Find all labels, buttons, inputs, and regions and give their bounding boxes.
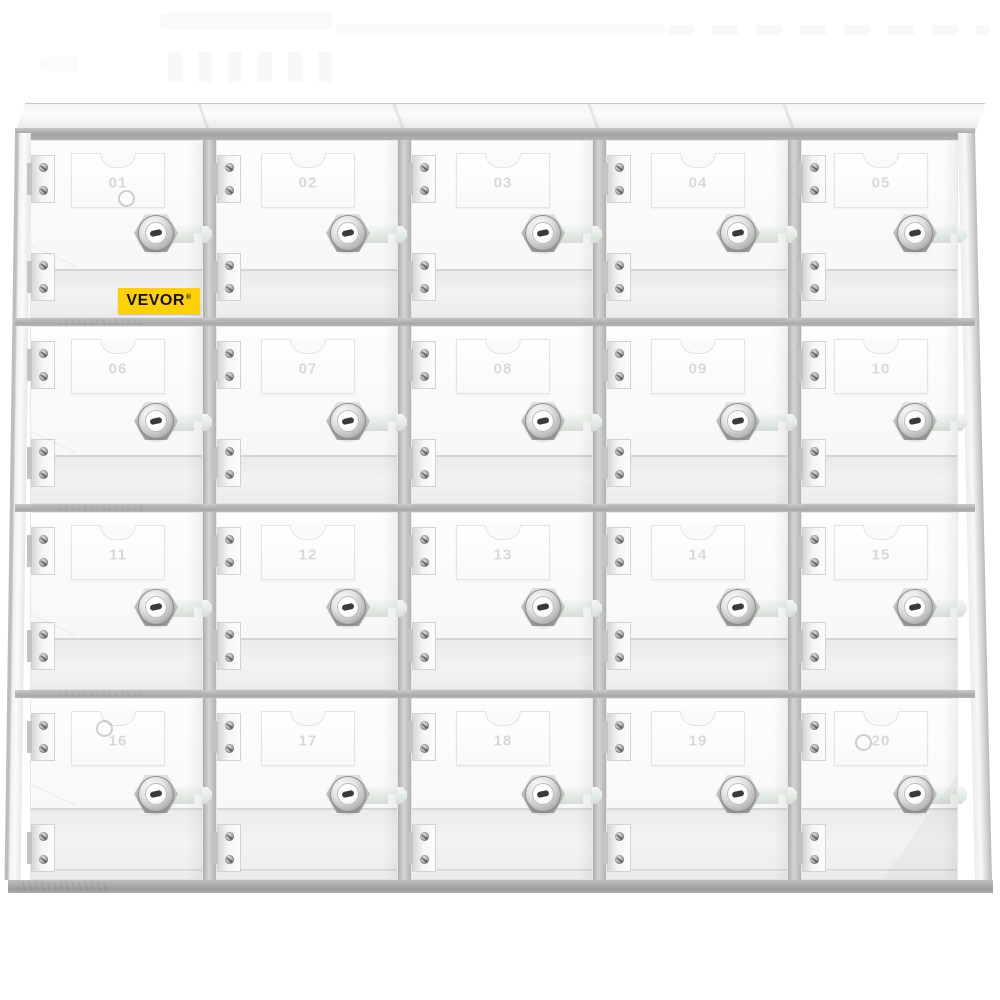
hinge-icon bbox=[802, 622, 826, 670]
keyhole-icon bbox=[342, 229, 355, 237]
cam-lock-icon bbox=[720, 215, 756, 251]
keyhole-icon bbox=[909, 603, 922, 611]
card-notch-icon bbox=[485, 711, 521, 726]
locker-number: 02 bbox=[262, 174, 354, 191]
keyhole-icon bbox=[909, 417, 922, 425]
card-notch-icon bbox=[863, 153, 899, 168]
card-notch-icon bbox=[100, 339, 136, 354]
shelf-edge bbox=[31, 455, 202, 507]
door-bottom-edge bbox=[217, 869, 397, 871]
hinge-icon bbox=[31, 527, 55, 575]
keyhole-icon bbox=[342, 790, 355, 798]
number-card: 16 bbox=[71, 711, 165, 766]
number-card: 09 bbox=[651, 339, 745, 394]
screw-icon bbox=[615, 186, 624, 195]
hinge-icon bbox=[607, 622, 631, 670]
lock-face bbox=[145, 410, 167, 432]
screw-icon bbox=[810, 349, 819, 358]
number-card: 15 bbox=[834, 525, 928, 580]
number-card: 11 bbox=[71, 525, 165, 580]
locker-number: 10 bbox=[835, 360, 927, 377]
shelf-edge bbox=[412, 808, 592, 883]
hinge-icon bbox=[31, 253, 55, 301]
locker-door-04: 04 bbox=[606, 140, 788, 318]
keyhole-icon bbox=[909, 229, 922, 237]
screw-icon bbox=[39, 832, 48, 841]
screw-icon bbox=[420, 372, 429, 381]
cam-lock-icon bbox=[138, 776, 174, 812]
screw-icon bbox=[39, 535, 48, 544]
keyhole-icon bbox=[150, 229, 163, 237]
lock-face bbox=[532, 410, 554, 432]
locker-door-06: 06 bbox=[30, 326, 203, 504]
key-ring-icon bbox=[96, 720, 113, 737]
locker-number: 16 bbox=[72, 732, 164, 749]
screw-icon bbox=[39, 284, 48, 293]
hinge-icon bbox=[607, 824, 631, 872]
cam-lock-icon bbox=[897, 589, 933, 625]
number-card: 12 bbox=[261, 525, 355, 580]
card-notch-icon bbox=[100, 525, 136, 540]
screw-icon bbox=[810, 470, 819, 479]
cam-lock-icon bbox=[138, 215, 174, 251]
hinge-icon bbox=[217, 253, 241, 301]
screw-icon bbox=[225, 470, 234, 479]
screw-icon bbox=[420, 186, 429, 195]
locker-door-10: 10 bbox=[801, 326, 958, 504]
keyhole-icon bbox=[732, 229, 745, 237]
keyhole-icon bbox=[342, 417, 355, 425]
lock-face bbox=[145, 222, 167, 244]
screw-icon bbox=[810, 653, 819, 662]
screw-icon bbox=[420, 558, 429, 567]
number-card: 06 bbox=[71, 339, 165, 394]
number-card: 01 bbox=[71, 153, 165, 208]
locker-door-03: 03 bbox=[411, 140, 593, 318]
hinge-icon bbox=[412, 341, 436, 389]
screw-icon bbox=[615, 630, 624, 639]
number-card: 10 bbox=[834, 339, 928, 394]
card-notch-icon bbox=[863, 711, 899, 726]
lock-face bbox=[904, 783, 926, 805]
cam-lock-icon bbox=[720, 589, 756, 625]
screw-icon bbox=[615, 372, 624, 381]
locker-number: 01 bbox=[72, 174, 164, 191]
screw-icon bbox=[420, 721, 429, 730]
screw-icon bbox=[810, 284, 819, 293]
screw-icon bbox=[420, 653, 429, 662]
keyhole-icon bbox=[909, 790, 922, 798]
hinge-icon bbox=[412, 713, 436, 761]
hinge-icon bbox=[217, 439, 241, 487]
cabinet-bottom-rail bbox=[8, 880, 993, 893]
locker-door-09: 09 bbox=[606, 326, 788, 504]
lock-face bbox=[904, 410, 926, 432]
keyhole-icon bbox=[537, 603, 550, 611]
locker-number: 14 bbox=[652, 546, 744, 563]
door-bottom-edge bbox=[607, 869, 787, 871]
locker-number: 11 bbox=[72, 546, 164, 563]
ceiling-reflection bbox=[335, 24, 665, 35]
screw-icon bbox=[810, 372, 819, 381]
hinge-icon bbox=[802, 253, 826, 301]
lock-face bbox=[532, 783, 554, 805]
screw-icon bbox=[39, 855, 48, 864]
screw-icon bbox=[225, 372, 234, 381]
registered-trademark-icon: ® bbox=[186, 294, 192, 301]
locker-number: 07 bbox=[262, 360, 354, 377]
locker-door-15: 15 bbox=[801, 512, 958, 690]
cam-lock-icon bbox=[330, 589, 366, 625]
cam-lock-icon bbox=[720, 776, 756, 812]
screw-icon bbox=[420, 855, 429, 864]
screw-icon bbox=[420, 284, 429, 293]
number-card: 14 bbox=[651, 525, 745, 580]
cam-lock-icon bbox=[330, 215, 366, 251]
shelf-edge bbox=[217, 455, 397, 507]
screw-icon bbox=[420, 744, 429, 753]
screw-icon bbox=[810, 186, 819, 195]
shelf-edge bbox=[607, 455, 787, 507]
hinge-icon bbox=[802, 824, 826, 872]
keyhole-icon bbox=[537, 790, 550, 798]
screw-icon bbox=[615, 744, 624, 753]
ceiling-reflection bbox=[668, 25, 990, 35]
number-card: 20 bbox=[834, 711, 928, 766]
card-notch-icon bbox=[290, 711, 326, 726]
card-notch-icon bbox=[680, 525, 716, 540]
number-card: 02 bbox=[261, 153, 355, 208]
screw-icon bbox=[420, 470, 429, 479]
card-notch-icon bbox=[863, 339, 899, 354]
door-bottom-edge bbox=[412, 869, 592, 871]
shelf-edge bbox=[217, 808, 397, 883]
screw-icon bbox=[420, 447, 429, 456]
lock-face bbox=[727, 596, 749, 618]
cam-lock-icon bbox=[525, 776, 561, 812]
locker-number: 09 bbox=[652, 360, 744, 377]
shelf-edge bbox=[607, 269, 787, 321]
screw-icon bbox=[39, 349, 48, 358]
lock-face bbox=[337, 410, 359, 432]
hinge-icon bbox=[217, 824, 241, 872]
cam-lock-icon bbox=[897, 776, 933, 812]
brand-badge: VEVOR® bbox=[118, 288, 200, 314]
card-notch-icon bbox=[290, 153, 326, 168]
hinge-icon bbox=[31, 713, 55, 761]
screw-icon bbox=[225, 630, 234, 639]
locker-number: 04 bbox=[652, 174, 744, 191]
screw-icon bbox=[615, 470, 624, 479]
card-notch-icon bbox=[680, 153, 716, 168]
cam-lock-icon bbox=[720, 403, 756, 439]
keyhole-icon bbox=[342, 603, 355, 611]
shelf-edge bbox=[217, 269, 397, 321]
lock-face bbox=[532, 596, 554, 618]
lock-face bbox=[337, 596, 359, 618]
hinge-icon bbox=[217, 527, 241, 575]
screw-icon bbox=[39, 558, 48, 567]
locker-number: 06 bbox=[72, 360, 164, 377]
card-notch-icon bbox=[680, 339, 716, 354]
screw-icon bbox=[225, 186, 234, 195]
shelf-edge bbox=[607, 638, 787, 693]
screw-icon bbox=[810, 744, 819, 753]
key-ring-icon bbox=[855, 734, 872, 751]
locker-door-13: 13 bbox=[411, 512, 593, 690]
hinge-icon bbox=[802, 713, 826, 761]
number-card: 17 bbox=[261, 711, 355, 766]
hinge-icon bbox=[607, 253, 631, 301]
shelf-edge bbox=[412, 638, 592, 693]
cam-lock-icon bbox=[897, 215, 933, 251]
locker-number: 12 bbox=[262, 546, 354, 563]
screw-icon bbox=[615, 535, 624, 544]
locker-number: 18 bbox=[457, 732, 549, 749]
card-notch-icon bbox=[290, 339, 326, 354]
locker-door-17: 17 bbox=[216, 698, 398, 880]
screw-icon bbox=[225, 349, 234, 358]
lock-face bbox=[532, 222, 554, 244]
cam-lock-icon bbox=[330, 403, 366, 439]
shelf-edge bbox=[217, 638, 397, 693]
screw-icon bbox=[39, 470, 48, 479]
hinge-icon bbox=[412, 253, 436, 301]
hinge-icon bbox=[607, 713, 631, 761]
locker-door-19: 19 bbox=[606, 698, 788, 880]
hinge-icon bbox=[217, 341, 241, 389]
screw-icon bbox=[39, 744, 48, 753]
screw-icon bbox=[615, 855, 624, 864]
screw-icon bbox=[810, 447, 819, 456]
ceiling-reflection bbox=[168, 52, 333, 82]
card-notch-icon bbox=[863, 525, 899, 540]
screw-icon bbox=[225, 832, 234, 841]
lock-face bbox=[904, 596, 926, 618]
screw-icon bbox=[615, 721, 624, 730]
lock-face bbox=[145, 783, 167, 805]
hinge-icon bbox=[217, 155, 241, 203]
locker-door-20: 20 bbox=[801, 698, 958, 880]
hinge-icon bbox=[607, 527, 631, 575]
cam-lock-icon bbox=[330, 776, 366, 812]
screw-icon bbox=[225, 447, 234, 456]
screw-icon bbox=[810, 558, 819, 567]
keyhole-icon bbox=[732, 603, 745, 611]
screw-icon bbox=[615, 163, 624, 172]
screw-icon bbox=[225, 744, 234, 753]
screw-icon bbox=[420, 630, 429, 639]
lock-face bbox=[337, 222, 359, 244]
cam-lock-icon bbox=[138, 403, 174, 439]
screw-icon bbox=[225, 558, 234, 567]
card-notch-icon bbox=[100, 153, 136, 168]
hinge-icon bbox=[31, 439, 55, 487]
shelf-edge bbox=[31, 808, 202, 883]
screw-icon bbox=[420, 832, 429, 841]
number-card: 04 bbox=[651, 153, 745, 208]
screw-icon bbox=[810, 163, 819, 172]
number-card: 05 bbox=[834, 153, 928, 208]
keyhole-icon bbox=[150, 603, 163, 611]
hinge-icon bbox=[802, 341, 826, 389]
screw-icon bbox=[225, 163, 234, 172]
screw-icon bbox=[225, 855, 234, 864]
brand-badge-text: VEVOR bbox=[126, 292, 185, 310]
keyhole-icon bbox=[537, 229, 550, 237]
locker-door-05: 05 bbox=[801, 140, 958, 318]
locker-number: 08 bbox=[457, 360, 549, 377]
keyhole-icon bbox=[732, 417, 745, 425]
screw-icon bbox=[225, 721, 234, 730]
screw-icon bbox=[39, 721, 48, 730]
screw-icon bbox=[39, 186, 48, 195]
lock-face bbox=[337, 783, 359, 805]
hinge-icon bbox=[802, 527, 826, 575]
hinge-icon bbox=[607, 341, 631, 389]
keyhole-icon bbox=[150, 790, 163, 798]
screw-icon bbox=[615, 653, 624, 662]
hinge-icon bbox=[412, 622, 436, 670]
screw-icon bbox=[810, 855, 819, 864]
lock-face bbox=[727, 410, 749, 432]
number-card: 08 bbox=[456, 339, 550, 394]
locker-door-18: 18 bbox=[411, 698, 593, 880]
screw-icon bbox=[39, 372, 48, 381]
screw-icon bbox=[420, 261, 429, 270]
door-bottom-edge bbox=[31, 869, 202, 871]
screw-icon bbox=[810, 630, 819, 639]
locker-door-07: 07 bbox=[216, 326, 398, 504]
card-notch-icon bbox=[290, 525, 326, 540]
locker-number: 13 bbox=[457, 546, 549, 563]
locker-number: 17 bbox=[262, 732, 354, 749]
locker-number: 05 bbox=[835, 174, 927, 191]
locker-number: 19 bbox=[652, 732, 744, 749]
locker-number: 03 bbox=[457, 174, 549, 191]
hinge-icon bbox=[412, 527, 436, 575]
number-card: 13 bbox=[456, 525, 550, 580]
number-card: 19 bbox=[651, 711, 745, 766]
screw-icon bbox=[420, 535, 429, 544]
locker-door-14: 14 bbox=[606, 512, 788, 690]
screw-icon bbox=[225, 284, 234, 293]
card-notch-icon bbox=[485, 153, 521, 168]
shelf-edge bbox=[607, 808, 787, 883]
screw-icon bbox=[39, 653, 48, 662]
number-card: 18 bbox=[456, 711, 550, 766]
shelf-edge bbox=[412, 269, 592, 321]
lock-face bbox=[727, 783, 749, 805]
keyhole-icon bbox=[732, 790, 745, 798]
ceiling-reflection bbox=[40, 57, 78, 71]
screw-icon bbox=[420, 349, 429, 358]
hinge-icon bbox=[607, 155, 631, 203]
cam-lock-icon bbox=[897, 403, 933, 439]
screw-icon bbox=[810, 261, 819, 270]
ceiling-reflection bbox=[160, 13, 332, 29]
hinge-icon bbox=[607, 439, 631, 487]
locker-door-02: 02 bbox=[216, 140, 398, 318]
number-card: 07 bbox=[261, 339, 355, 394]
key-ring-icon bbox=[118, 190, 135, 207]
card-notch-icon bbox=[680, 711, 716, 726]
hinge-icon bbox=[31, 622, 55, 670]
screw-icon bbox=[225, 261, 234, 270]
screw-icon bbox=[225, 653, 234, 662]
hinge-icon bbox=[412, 155, 436, 203]
screw-icon bbox=[810, 535, 819, 544]
cam-lock-icon bbox=[138, 589, 174, 625]
screw-icon bbox=[39, 447, 48, 456]
screw-icon bbox=[615, 558, 624, 567]
lock-face bbox=[145, 596, 167, 618]
lock-face bbox=[904, 222, 926, 244]
cam-lock-icon bbox=[525, 215, 561, 251]
screw-icon bbox=[615, 349, 624, 358]
number-card: 03 bbox=[456, 153, 550, 208]
keyhole-icon bbox=[537, 417, 550, 425]
screw-icon bbox=[615, 284, 624, 293]
shelf-edge bbox=[412, 455, 592, 507]
hinge-icon bbox=[217, 622, 241, 670]
hinge-icon bbox=[802, 439, 826, 487]
keyhole-icon bbox=[150, 417, 163, 425]
locker-number: 15 bbox=[835, 546, 927, 563]
screw-icon bbox=[810, 721, 819, 730]
hinge-icon bbox=[31, 341, 55, 389]
locker-number: 20 bbox=[835, 732, 927, 749]
screw-icon bbox=[39, 163, 48, 172]
hinge-icon bbox=[217, 713, 241, 761]
interior-corner-line bbox=[31, 784, 77, 806]
product-photo-stage: 0102030405060708091011121314151617181920… bbox=[0, 0, 1000, 1000]
cabinet-top-front-rail bbox=[15, 128, 975, 140]
hinge-icon bbox=[412, 439, 436, 487]
screw-icon bbox=[225, 535, 234, 544]
screw-icon bbox=[615, 261, 624, 270]
screw-icon bbox=[615, 447, 624, 456]
cam-lock-icon bbox=[525, 589, 561, 625]
cam-lock-icon bbox=[525, 403, 561, 439]
lock-face bbox=[727, 222, 749, 244]
locker-door-12: 12 bbox=[216, 512, 398, 690]
screw-icon bbox=[615, 832, 624, 841]
card-notch-icon bbox=[485, 525, 521, 540]
screw-icon bbox=[810, 832, 819, 841]
locker-door-11: 11 bbox=[30, 512, 203, 690]
hinge-icon bbox=[802, 155, 826, 203]
hinge-icon bbox=[412, 824, 436, 872]
screw-icon bbox=[39, 261, 48, 270]
hinge-icon bbox=[31, 155, 55, 203]
locker-door-16: 16 bbox=[30, 698, 203, 880]
hinge-icon bbox=[31, 824, 55, 872]
screw-icon bbox=[420, 163, 429, 172]
shelf-edge bbox=[31, 638, 202, 693]
card-notch-icon bbox=[485, 339, 521, 354]
screw-icon bbox=[39, 630, 48, 639]
locker-door-08: 08 bbox=[411, 326, 593, 504]
